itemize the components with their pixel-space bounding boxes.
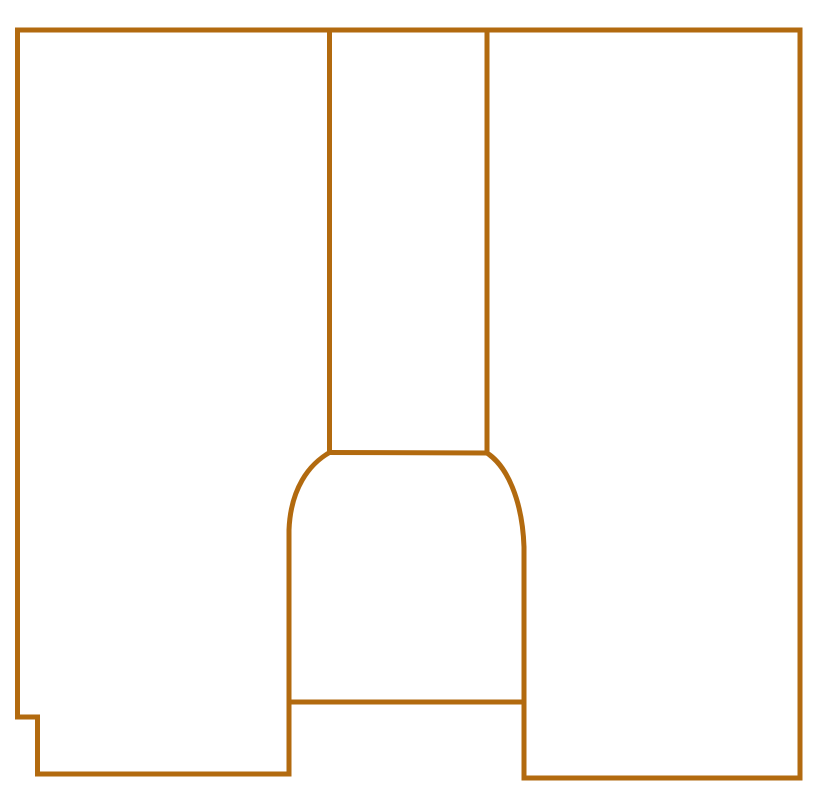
channel-shoulder-line: [330, 453, 488, 454]
keyhole-diagram: [0, 0, 817, 810]
drawing-area: [0, 0, 817, 810]
bell-left-side: [289, 453, 330, 775]
outer-border: [18, 30, 801, 778]
bell-right-side: [487, 453, 524, 778]
